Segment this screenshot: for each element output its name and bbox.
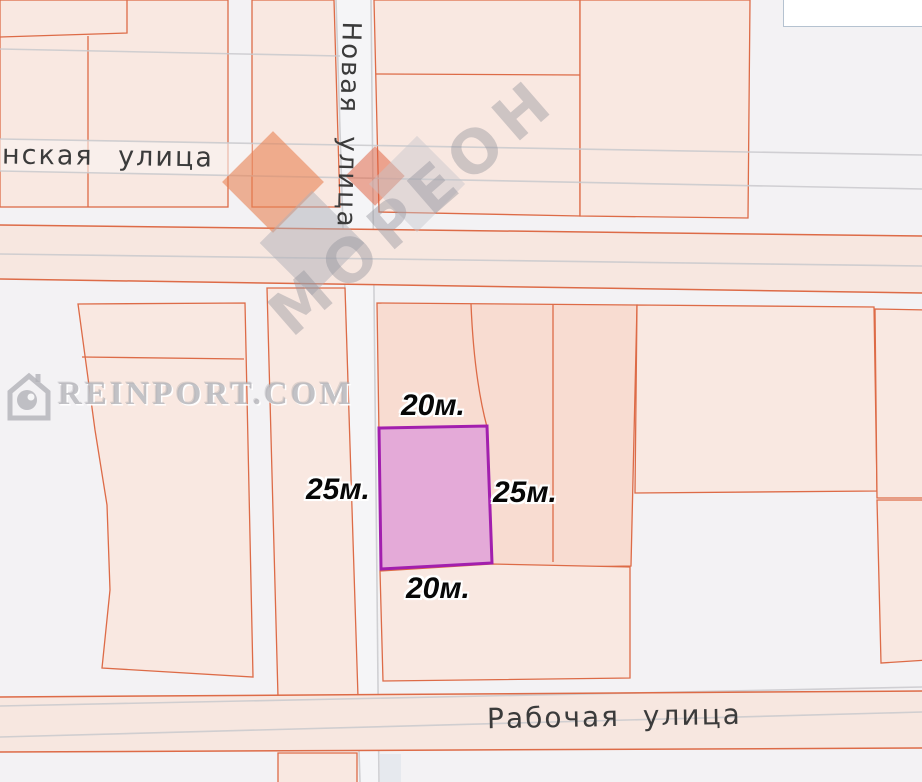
- map-canvas: МОРЕОН REINPORT.COM нская улица Новая ул…: [0, 0, 922, 782]
- highlighted-plot[interactable]: [379, 426, 492, 569]
- street-main-band: [0, 225, 922, 293]
- parcel: [635, 305, 877, 493]
- parcel: [877, 500, 922, 663]
- plot-dimension-right: 25м.: [493, 476, 557, 510]
- parcel: [875, 309, 922, 498]
- house-icon: [6, 364, 52, 424]
- street-rabochaya-band: [0, 691, 922, 752]
- plot-dimension-bottom: 20м.: [406, 572, 470, 606]
- plot-dimension-top: 20м.: [401, 389, 465, 423]
- reinport-watermark: REINPORT.COM: [6, 364, 353, 424]
- map-overlay-panel: [783, 0, 922, 27]
- street-label-nskaya: нская улица: [2, 140, 214, 174]
- street-label-rabochaya: Рабочая улица: [487, 698, 742, 735]
- parcel: [0, 0, 228, 207]
- street-label-novaya: Новая улица: [331, 21, 366, 229]
- parcel: [278, 753, 357, 782]
- plot-dimension-left: 25м.: [306, 473, 370, 507]
- building-footprint: [380, 754, 401, 782]
- reinport-watermark-text: REINPORT.COM: [58, 376, 353, 413]
